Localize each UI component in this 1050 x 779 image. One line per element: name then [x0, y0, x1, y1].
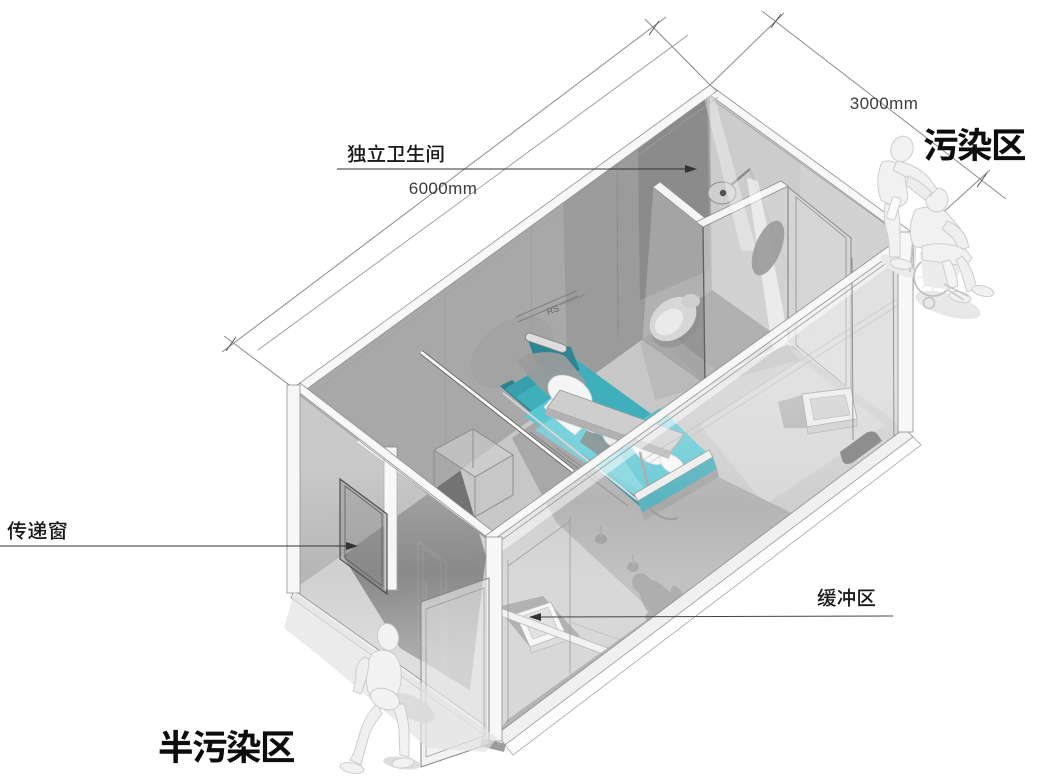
svg-text:3000mm: 3000mm [850, 94, 919, 113]
svg-text:6000mm: 6000mm [409, 179, 478, 198]
